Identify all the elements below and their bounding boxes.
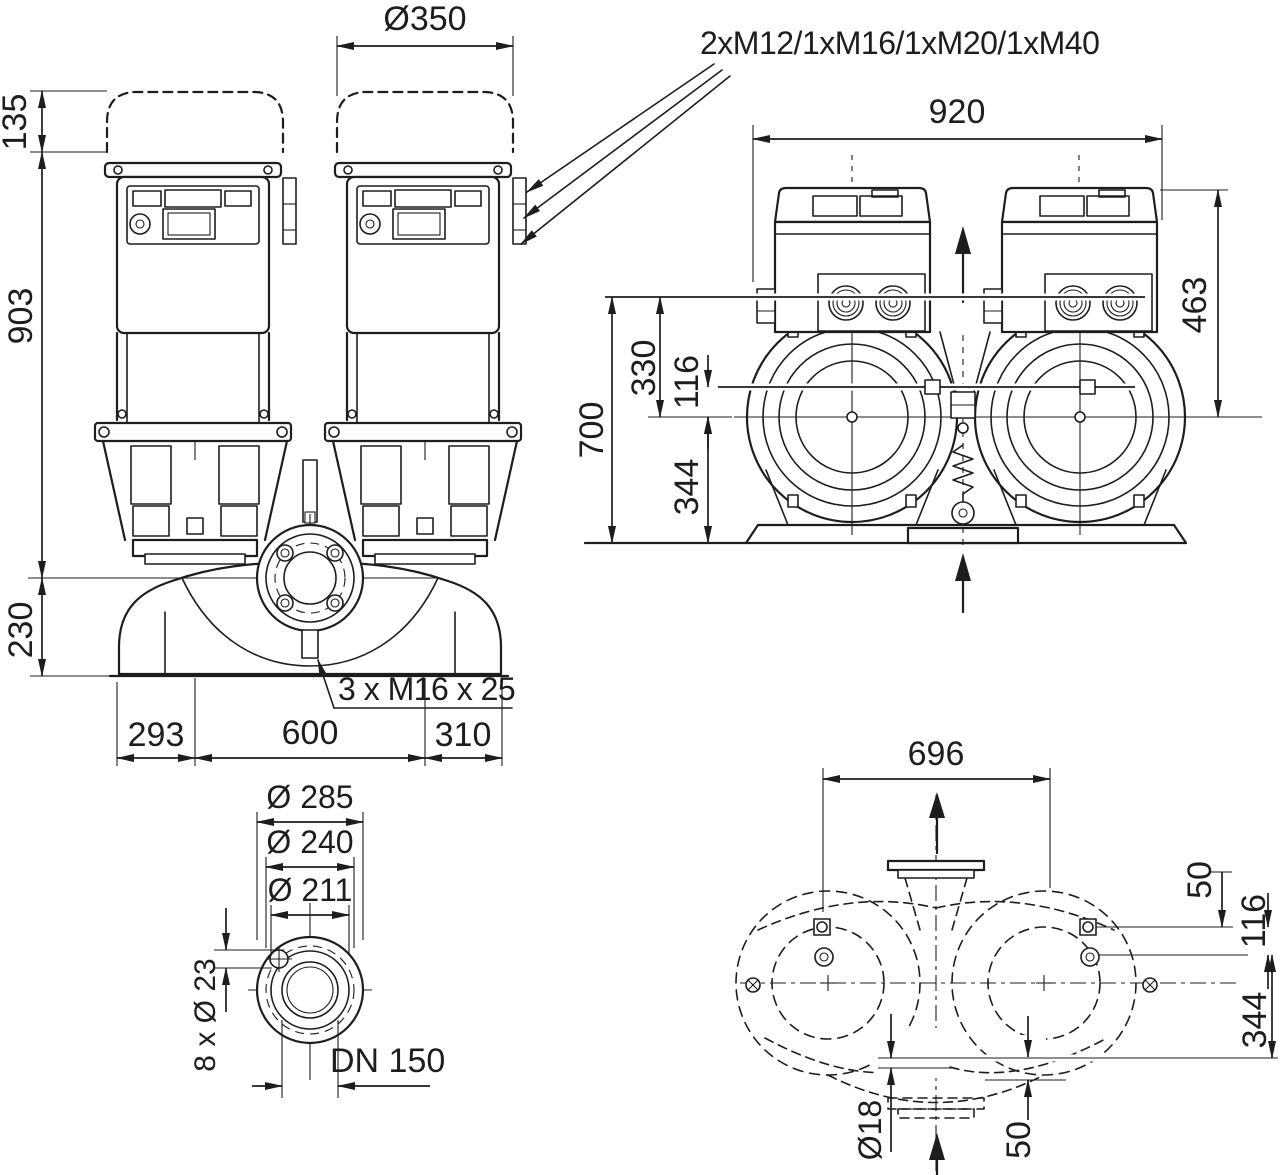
label-tapped-holes: 3 x M16 x 25 [338,671,515,707]
dim-axis-to-top: 463 [1176,277,1214,334]
flow-direction-arrow-plan-bottom [929,1133,945,1175]
pump-tower-right [325,92,526,564]
dim-base-left: 293 [128,716,185,754]
discharge-flange-plan [888,861,984,878]
dim-raised-face: Ø 211 [268,872,353,908]
dim-axis-to-base: 230 [2,602,40,659]
housing-bolts [814,919,1099,966]
flange-detail-view: Ø 285 Ø 240 Ø 211 8 x Ø 23 DN 150 [189,779,445,1098]
dim-bolt-circle: Ø 240 [266,824,353,860]
plan-dimensions: 696 50 116 344 Ø18 50 [823,735,1274,1160]
dim-module-to-axis: 903 [2,288,40,345]
dim-overall-width: 920 [929,93,986,131]
dimensional-drawing-page: Ø350 135 903 230 293 600 310 3 x M16 x 2… [0,0,1280,1175]
dim-344: 344 [668,459,706,516]
module-left [757,155,930,332]
dim-116: 116 [668,355,706,409]
dim-base-right: 310 [435,716,492,754]
dim-bolt-holes: 8 x Ø 23 [189,958,222,1071]
module-right [984,155,1157,332]
dim-outer-diameter: Ø 285 [266,779,353,815]
tapped-hole-stud [302,630,318,658]
fan-right [962,299,1198,535]
dim-pump-spacing: 600 [282,714,339,752]
dim-bolt-spacing: 696 [908,735,965,773]
fan-left [734,299,970,535]
pump-tower-left [95,92,296,564]
dim-anchor-hole: Ø18 [852,1100,888,1160]
flow-direction-arrow-bottom [955,553,971,612]
label-cable-glands: 2xM12/1xM16/1xM20/1xM40 [700,25,1099,61]
dim-overall-height: 700 [573,402,611,459]
flow-direction-arrow-plan-top [929,792,945,853]
dim-330: 330 [625,340,663,397]
pump-dimensional-drawing: Ø350 135 903 230 293 600 310 3 x M16 x 2… [0,0,1280,1175]
side-view: 920 463 700 330 116 344 [573,93,1262,612]
dim-344-plan: 344 [1236,992,1274,1049]
flow-direction-arrow-top [955,226,971,302]
base-plate [585,525,1186,543]
dim-50-top: 50 [1181,861,1219,899]
dim-cap-height: 135 [0,94,34,151]
dim-cap-diameter: Ø350 [383,0,466,38]
dim-116-plan: 116 [1235,894,1273,948]
dim-50-bottom: 50 [1000,1121,1038,1159]
dim-nominal-diameter: DN 150 [330,1042,445,1080]
plan-view: 696 50 116 344 Ø18 50 [736,735,1278,1175]
